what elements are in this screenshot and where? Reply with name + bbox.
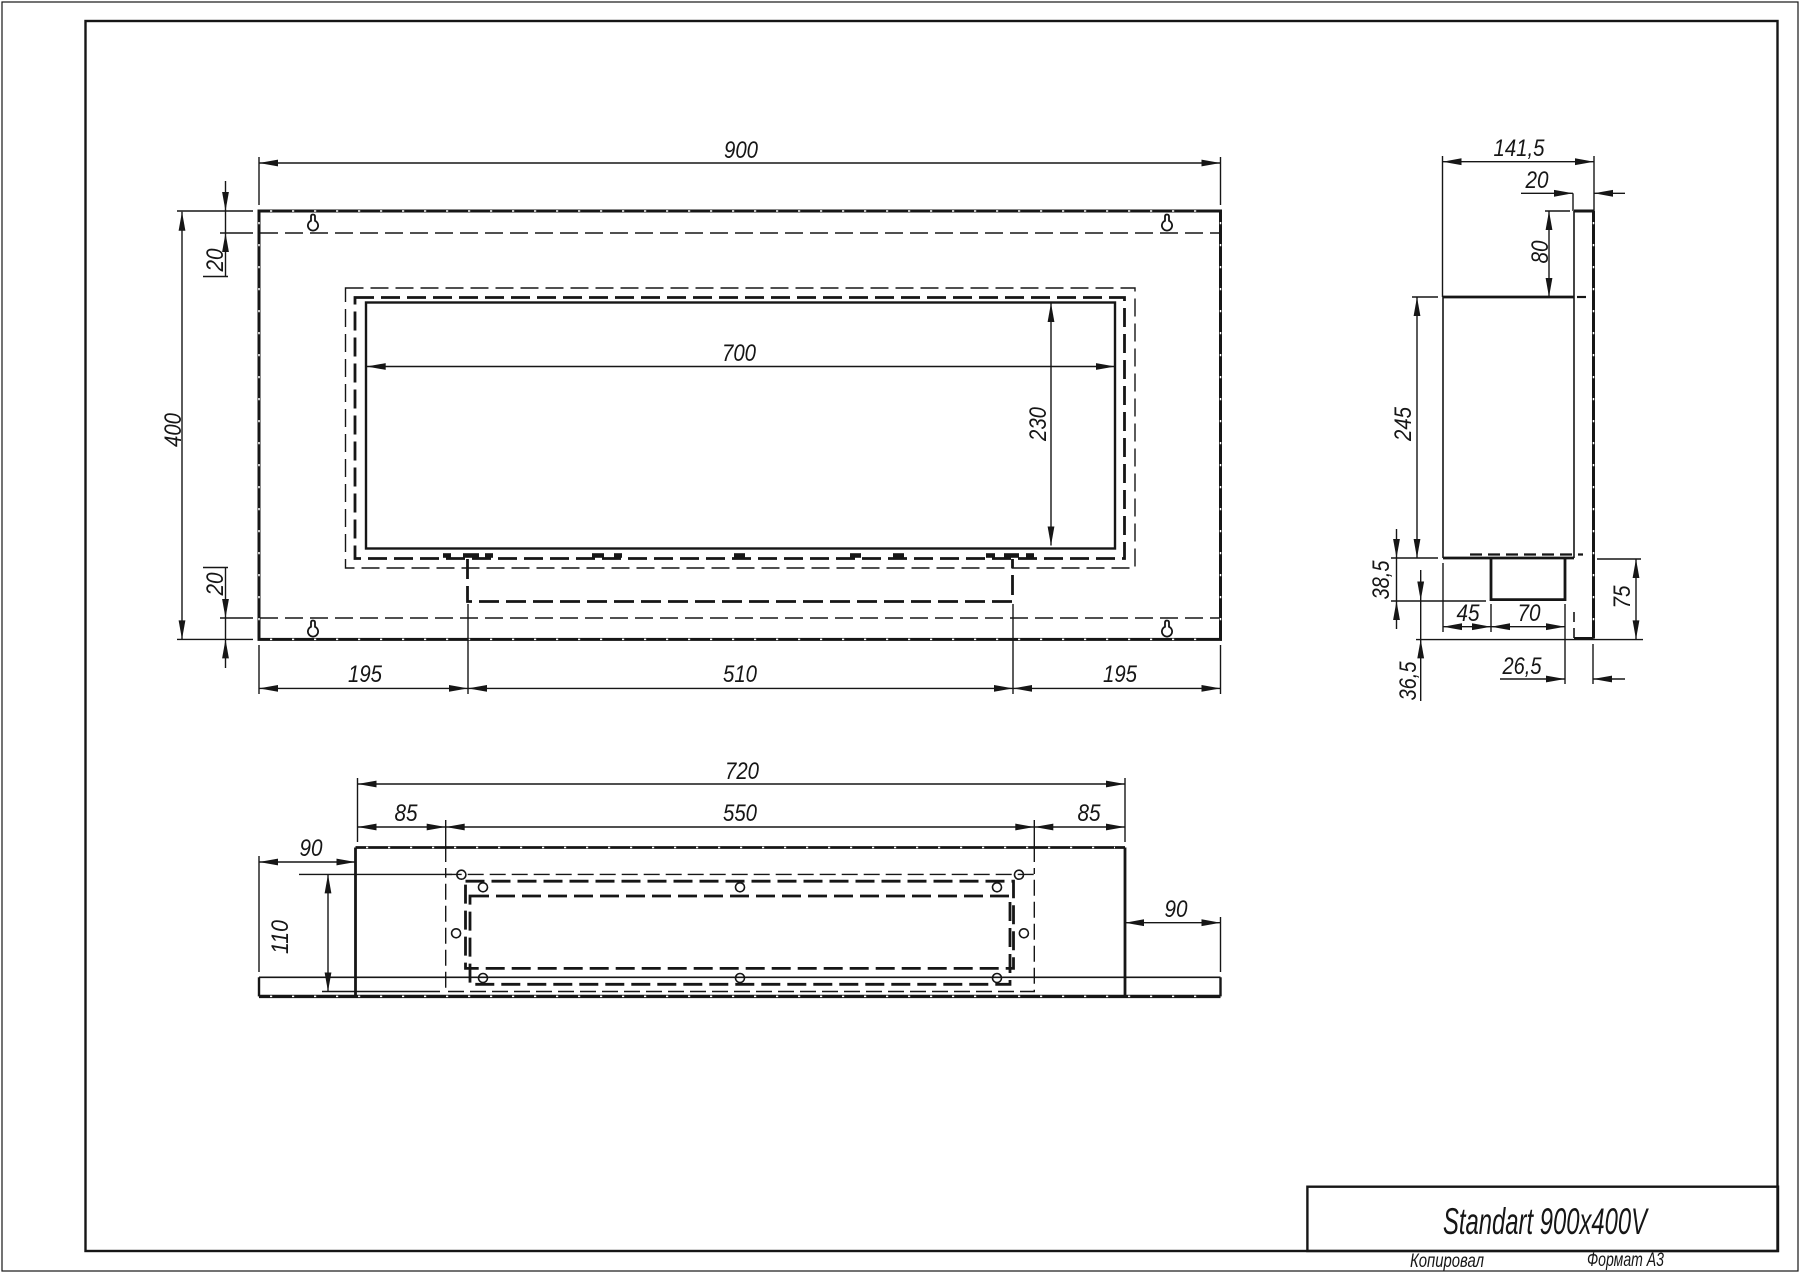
- svg-text:510: 510: [723, 661, 758, 688]
- svg-text:90: 90: [300, 835, 324, 862]
- svg-text:Формат А3: Формат А3: [1587, 1250, 1664, 1271]
- svg-text:85: 85: [1078, 800, 1102, 827]
- svg-text:20: 20: [202, 248, 229, 272]
- svg-text:38,5: 38,5: [1368, 560, 1395, 600]
- svg-text:20: 20: [202, 572, 229, 596]
- svg-text:400: 400: [160, 412, 187, 447]
- svg-text:Standart 900x400V: Standart 900x400V: [1443, 1201, 1649, 1242]
- svg-text:85: 85: [395, 800, 419, 827]
- svg-text:110: 110: [267, 919, 294, 954]
- svg-text:45: 45: [1457, 600, 1481, 627]
- svg-text:900: 900: [724, 137, 759, 164]
- svg-text:36,5: 36,5: [1395, 661, 1422, 701]
- svg-text:26,5: 26,5: [1502, 653, 1542, 680]
- svg-text:195: 195: [348, 661, 383, 688]
- svg-text:141,5: 141,5: [1494, 135, 1546, 162]
- svg-text:90: 90: [1165, 896, 1189, 923]
- svg-text:Копировал: Копировал: [1410, 1251, 1484, 1272]
- svg-text:700: 700: [722, 340, 757, 367]
- svg-text:230: 230: [1025, 406, 1052, 441]
- svg-text:70: 70: [1518, 600, 1542, 627]
- svg-text:550: 550: [723, 800, 758, 827]
- svg-text:75: 75: [1609, 585, 1636, 609]
- svg-text:195: 195: [1103, 661, 1138, 688]
- svg-text:20: 20: [1525, 167, 1549, 194]
- svg-text:720: 720: [725, 758, 760, 785]
- svg-text:245: 245: [1390, 406, 1417, 441]
- svg-text:80: 80: [1527, 240, 1554, 264]
